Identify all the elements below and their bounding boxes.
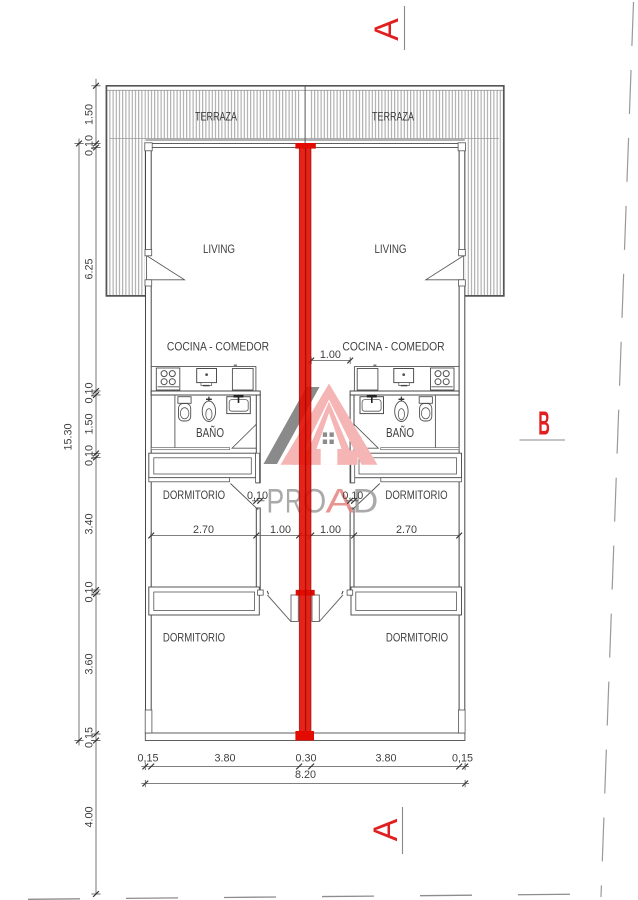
svg-text:6.25: 6.25	[83, 259, 95, 280]
svg-text:0.30: 0.30	[296, 752, 317, 764]
svg-text:COCINA - COMEDOR: COCINA - COMEDOR	[342, 341, 444, 354]
svg-text:0,10: 0,10	[83, 135, 95, 156]
svg-text:DORMITORIO: DORMITORIO	[163, 631, 226, 644]
svg-text:P: P	[267, 482, 285, 520]
svg-text:DORMITORIO: DORMITORIO	[385, 489, 448, 502]
svg-text:TERRAZA: TERRAZA	[372, 110, 415, 124]
svg-text:0,15: 0,15	[83, 727, 95, 748]
svg-text:A: A	[367, 818, 405, 841]
svg-text:LIVING: LIVING	[203, 243, 235, 256]
svg-text:2.70: 2.70	[396, 524, 417, 536]
svg-text:1.00: 1.00	[270, 524, 291, 536]
svg-text:1.00: 1.00	[320, 349, 341, 361]
svg-text:0,15: 0,15	[452, 752, 473, 764]
svg-text:A: A	[368, 18, 406, 41]
svg-text:0,15: 0,15	[138, 752, 159, 764]
svg-text:8.20: 8.20	[295, 769, 316, 781]
svg-text:BAÑO: BAÑO	[196, 426, 224, 441]
svg-text:0,10: 0,10	[83, 383, 95, 404]
svg-text:COCINA - COMEDOR: COCINA - COMEDOR	[167, 341, 269, 354]
svg-text:BAÑO: BAÑO	[386, 426, 414, 441]
svg-text:0,10: 0,10	[83, 582, 95, 603]
svg-text:0,10: 0,10	[247, 490, 268, 502]
svg-text:0,10: 0,10	[83, 445, 95, 466]
svg-text:15.30: 15.30	[62, 424, 74, 451]
svg-text:TERRAZA: TERRAZA	[195, 110, 238, 124]
svg-text:3.40: 3.40	[83, 514, 95, 535]
svg-text:3.60: 3.60	[83, 654, 95, 675]
svg-text:1.50: 1.50	[83, 414, 95, 435]
svg-text:0,10: 0,10	[342, 490, 363, 502]
svg-text:DORMITORIO: DORMITORIO	[386, 631, 449, 644]
svg-text:3.80: 3.80	[376, 752, 397, 764]
svg-text:B: B	[538, 404, 550, 442]
svg-text:DORMITORIO: DORMITORIO	[163, 489, 226, 502]
svg-text:2.70: 2.70	[193, 524, 214, 536]
svg-text:1.50: 1.50	[83, 104, 95, 125]
svg-text:3.80: 3.80	[215, 752, 236, 764]
svg-text:1.00: 1.00	[320, 524, 341, 536]
svg-text:4.00: 4.00	[83, 807, 95, 828]
svg-text:LIVING: LIVING	[374, 243, 406, 256]
